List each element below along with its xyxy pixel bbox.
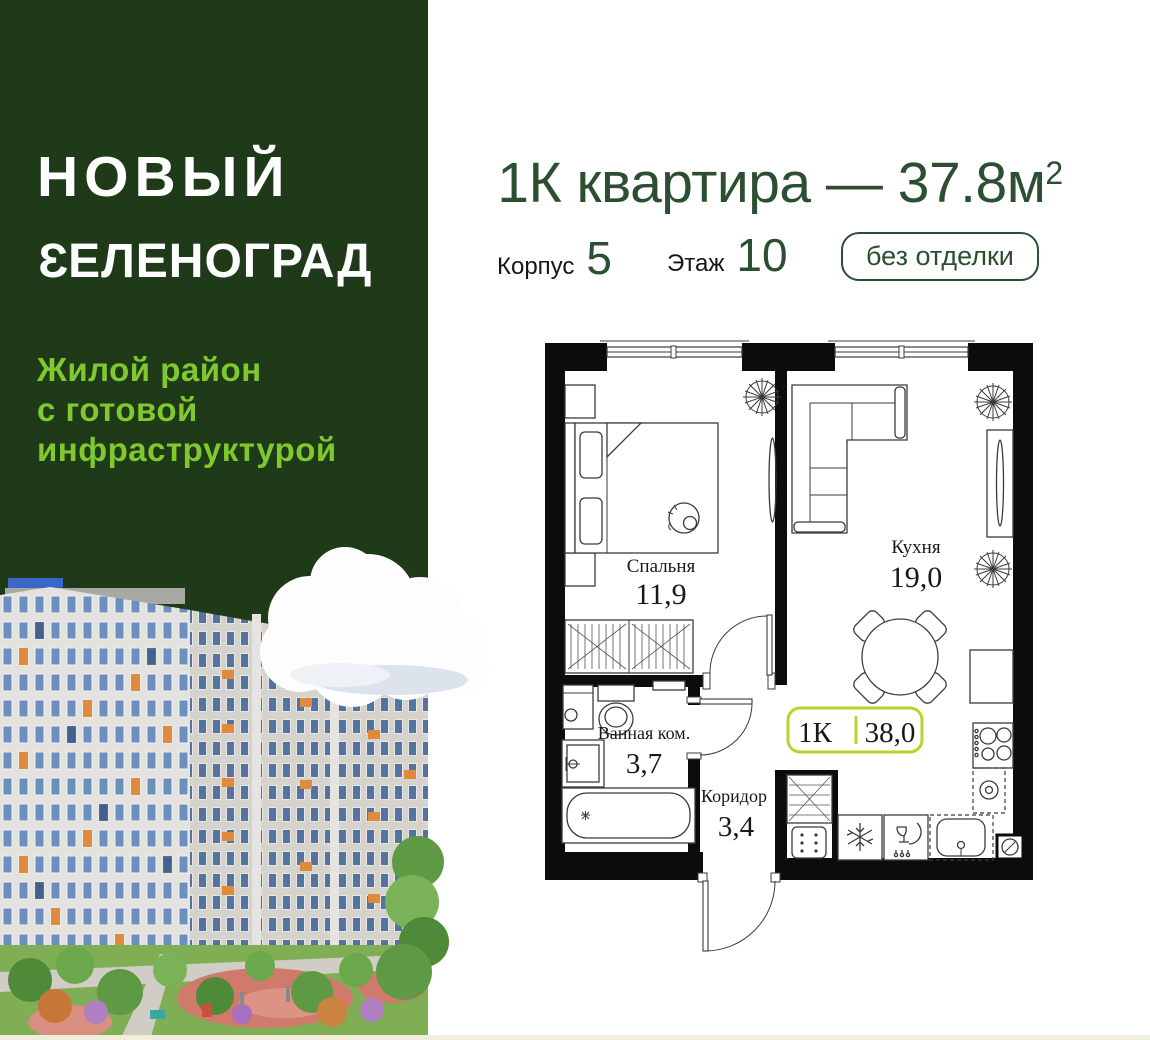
room-label-kitchen: Кухня <box>891 537 940 558</box>
room-area-kitchen: 19,0 <box>890 561 943 594</box>
cloud <box>260 547 490 707</box>
finish-badge: без отделки <box>841 232 1039 281</box>
wardrobe-bedroom <box>565 620 693 673</box>
tall-cabinet <box>970 650 1013 703</box>
tagline-line-1: Жилой район <box>37 350 337 390</box>
tagline-line-2: с готовой <box>37 390 337 430</box>
pillow <box>580 498 602 544</box>
kitchen-sink <box>930 815 993 860</box>
building-left <box>0 578 190 985</box>
hall-wardrobe <box>787 775 832 823</box>
entrance-door <box>698 873 780 951</box>
room-area-corridor: 3,4 <box>718 811 755 843</box>
brand-logo: НОВЫЙ ЗЕЛЕНОГРАД <box>37 146 372 288</box>
tv-cabinet <box>987 430 1013 537</box>
square-meter-sup: 2 <box>1045 155 1062 191</box>
bedroom-furniture <box>565 378 781 690</box>
dining-table <box>851 608 948 705</box>
room-area-bedroom: 11,9 <box>635 578 686 611</box>
brand-logo-line1: НОВЫЙ <box>37 146 372 208</box>
complex-photo <box>0 540 500 1040</box>
stove-burners-icon <box>973 723 1013 768</box>
fridge-snowflake-icon <box>838 815 882 860</box>
plan-area-badge: 1К 38,0 <box>788 708 922 752</box>
oven-spiral-icon <box>973 768 1005 813</box>
korpus-label: Корпус <box>497 253 574 281</box>
window-bedroom <box>600 341 749 358</box>
etazh-label: Этаж <box>667 250 724 278</box>
corner-sofa <box>792 385 907 533</box>
brand-tagline: Жилой район с готовой инфраструктурой <box>37 350 337 470</box>
etazh-block: Этаж 10 <box>667 228 788 282</box>
floor-plan: Спальня 11,9 <box>540 335 1040 1035</box>
pillow <box>580 432 602 478</box>
room-label-bathroom: Ванная ком. <box>598 723 690 743</box>
shoe-cabinet <box>792 827 826 858</box>
etazh-value: 10 <box>736 228 787 282</box>
plant-icon <box>974 550 1012 588</box>
room-label-bedroom: Спальня <box>627 556 696 577</box>
bedroom-door <box>703 615 775 689</box>
bathtub-icon <box>562 788 695 843</box>
bathroom-sink <box>562 740 604 787</box>
tagline-line-3: инфраструктурой <box>37 430 337 470</box>
bottom-strip <box>0 1035 1150 1040</box>
room-label-corridor: Коридор <box>701 786 767 806</box>
badge-rooms-type: 1К <box>798 717 833 749</box>
bedroom-tv <box>769 438 776 522</box>
apartment-title: 1К квартира — 37.8м2 <box>480 150 1080 216</box>
corner-appliance <box>997 835 1023 859</box>
korpus-block: Корпус 5 <box>497 231 612 285</box>
corridor-furniture <box>787 775 832 858</box>
brand-logo-line2: ЗЕЛЕНОГРАД <box>37 236 372 288</box>
radiator <box>653 681 685 690</box>
brand-logo-mirrored-z: З <box>37 236 68 288</box>
bathroom-door <box>687 697 752 759</box>
korpus-value: 5 <box>586 231 612 285</box>
bed <box>565 423 718 553</box>
room-area-bathroom: 3,7 <box>626 748 662 780</box>
plant-icon <box>974 383 1012 421</box>
dishwasher-icon <box>884 815 928 860</box>
nightstand-bottom <box>565 553 595 586</box>
window-kitchen <box>828 341 975 358</box>
washing-machine-icon <box>563 685 593 729</box>
nightstand-top <box>565 385 595 418</box>
badge-total-area: 38,0 <box>865 717 916 749</box>
